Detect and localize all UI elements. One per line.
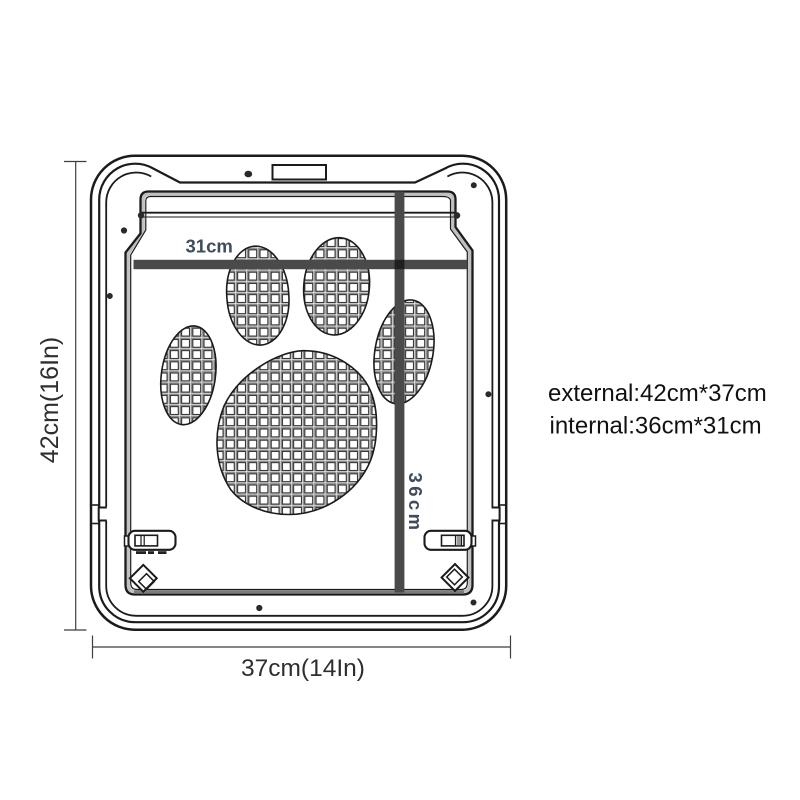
svg-text:external:42cm*37cm: external:42cm*37cm xyxy=(548,380,767,407)
svg-text:37cm(14In): 37cm(14In) xyxy=(241,655,365,682)
svg-text:31cm: 31cm xyxy=(186,236,233,257)
svg-text:36cm: 36cm xyxy=(405,473,426,534)
svg-text:internal:36cm*31cm: internal:36cm*31cm xyxy=(550,413,762,440)
svg-text:42cm(16In): 42cm(16In) xyxy=(36,337,64,463)
